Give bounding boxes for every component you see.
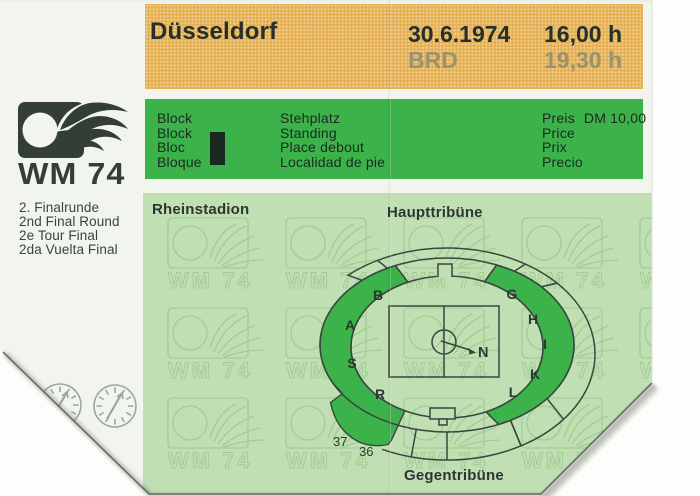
city-name: Düsseldorf	[150, 18, 277, 46]
seating-label-fr: Place debout	[280, 140, 385, 155]
header-band: Düsseldorf 30.6.1974 16,00 h BRD 19,30 h	[145, 4, 643, 89]
price-value: DM 10,00	[584, 111, 646, 126]
price-label-de: Preis	[542, 111, 575, 126]
round-label-es: 2da Vuelta Final	[19, 243, 120, 257]
seating-label-de: Stehplatz	[280, 111, 385, 126]
price-label-en: Price	[542, 126, 646, 141]
session1-time: 16,00 h	[544, 21, 622, 48]
round-label-de: 2. Finalrunde	[19, 201, 120, 215]
stadium-panel	[143, 193, 652, 496]
wm74-wordmark: WM 74	[18, 156, 125, 192]
block-label-de: Block	[157, 111, 202, 126]
fold-crease	[388, 0, 391, 496]
clock-stamp-icon	[94, 385, 136, 427]
block-label-fr: Bloc	[157, 140, 202, 155]
seating-label-en: Standing	[280, 126, 385, 141]
team-code: BRD	[408, 47, 458, 74]
price-labels: Preis DM 10,00 Price Prix Precio	[542, 111, 646, 169]
session2-time: 19,30 h	[544, 47, 622, 74]
price-label-es: Precio	[542, 155, 646, 170]
round-labels: 2. Finalrunde 2nd Final Round 2e Tour Fi…	[19, 201, 120, 257]
block-labels: Block Block Bloc Bloque	[157, 111, 202, 169]
clock-stamp-icons	[39, 384, 136, 427]
block-label-en: Block	[157, 126, 202, 141]
ticket: Düsseldorf 30.6.1974 16,00 h BRD 19,30 h…	[0, 0, 700, 496]
clock-stamp-icon-partial	[39, 384, 81, 426]
seating-labels: Stehplatz Standing Place debout Localida…	[280, 111, 385, 169]
round-label-fr: 2e Tour Final	[19, 229, 120, 243]
block-value: I	[210, 132, 225, 165]
block-band: Block Block Bloc Bloque I Stehplatz Stan…	[145, 99, 643, 179]
round-label-en: 2nd Final Round	[19, 215, 120, 229]
block-label-es: Bloque	[157, 155, 202, 170]
match-date: 30.6.1974	[408, 21, 510, 48]
wm74-logo-icon	[16, 98, 140, 164]
price-label-fr: Prix	[542, 140, 646, 155]
seating-label-es: Localidad de pie	[280, 155, 385, 170]
